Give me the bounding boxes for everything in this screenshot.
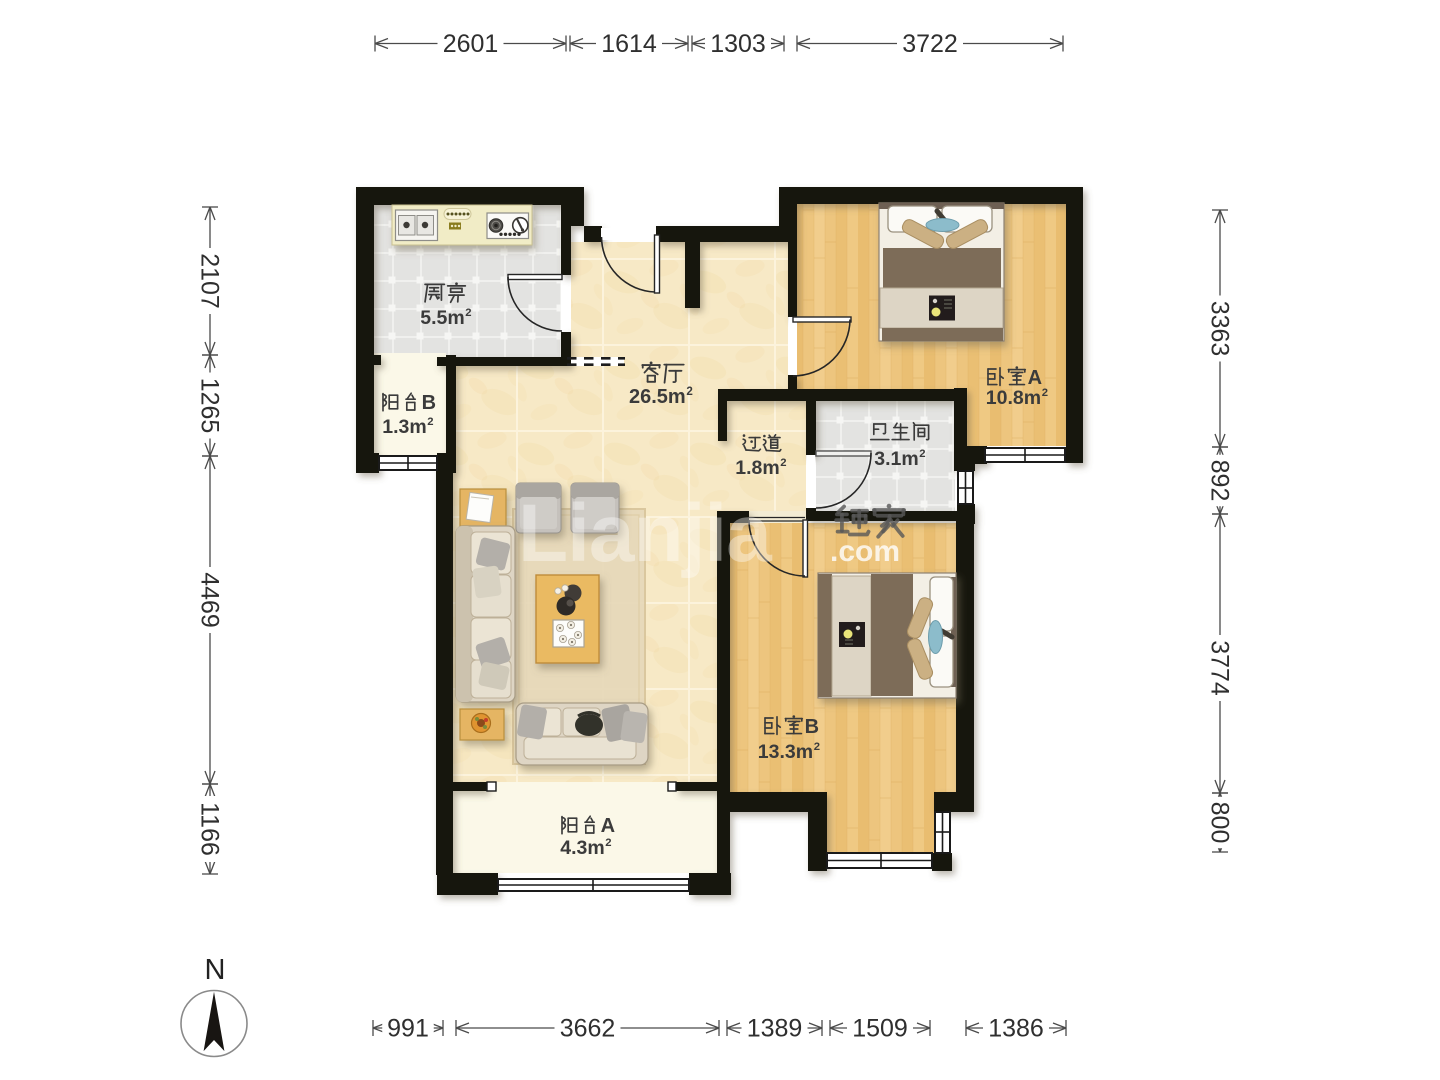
svg-text:1389: 1389 — [747, 1015, 803, 1043]
svg-text:4469: 4469 — [196, 572, 224, 628]
svg-text:4.3m: 4.3m — [560, 837, 604, 859]
svg-text:3363: 3363 — [1206, 301, 1234, 357]
svg-text:2: 2 — [780, 457, 786, 469]
svg-text:892: 892 — [1206, 460, 1234, 502]
svg-text:2: 2 — [814, 741, 820, 753]
svg-text:2: 2 — [919, 448, 925, 460]
svg-text:5.5m: 5.5m — [420, 307, 464, 329]
svg-text:A: A — [1028, 367, 1042, 389]
svg-text:2: 2 — [427, 416, 433, 428]
svg-text:B: B — [422, 392, 436, 414]
svg-text:2: 2 — [1042, 387, 1048, 399]
svg-text:1303: 1303 — [710, 30, 766, 58]
svg-text:1265: 1265 — [196, 378, 224, 434]
svg-text:A: A — [601, 815, 615, 837]
svg-text:800: 800 — [1206, 802, 1234, 844]
svg-text:1.8m: 1.8m — [735, 457, 779, 479]
svg-text:3722: 3722 — [902, 30, 958, 58]
svg-text:1166: 1166 — [196, 802, 224, 856]
svg-text:2: 2 — [465, 307, 471, 319]
svg-text:3.1m: 3.1m — [874, 448, 918, 470]
svg-text:N: N — [205, 954, 226, 986]
svg-text:3662: 3662 — [560, 1015, 616, 1043]
svg-text:2: 2 — [605, 837, 611, 849]
svg-text:13.3m: 13.3m — [758, 741, 813, 763]
svg-text:991: 991 — [387, 1015, 429, 1043]
svg-text:1509: 1509 — [852, 1015, 908, 1043]
svg-text:B: B — [805, 716, 819, 738]
svg-text:2107: 2107 — [196, 253, 224, 309]
svg-text:1614: 1614 — [601, 30, 657, 58]
svg-text:2: 2 — [686, 385, 692, 398]
svg-text:.com: .com — [830, 535, 900, 568]
svg-text:3774: 3774 — [1206, 640, 1234, 696]
svg-text:1386: 1386 — [988, 1015, 1044, 1043]
svg-text:10.8m: 10.8m — [986, 387, 1041, 409]
svg-text:Lianjia: Lianjia — [518, 488, 773, 579]
svg-text:1.3m: 1.3m — [382, 416, 426, 438]
svg-text:26.5m: 26.5m — [629, 386, 686, 408]
svg-text:2601: 2601 — [443, 30, 499, 58]
